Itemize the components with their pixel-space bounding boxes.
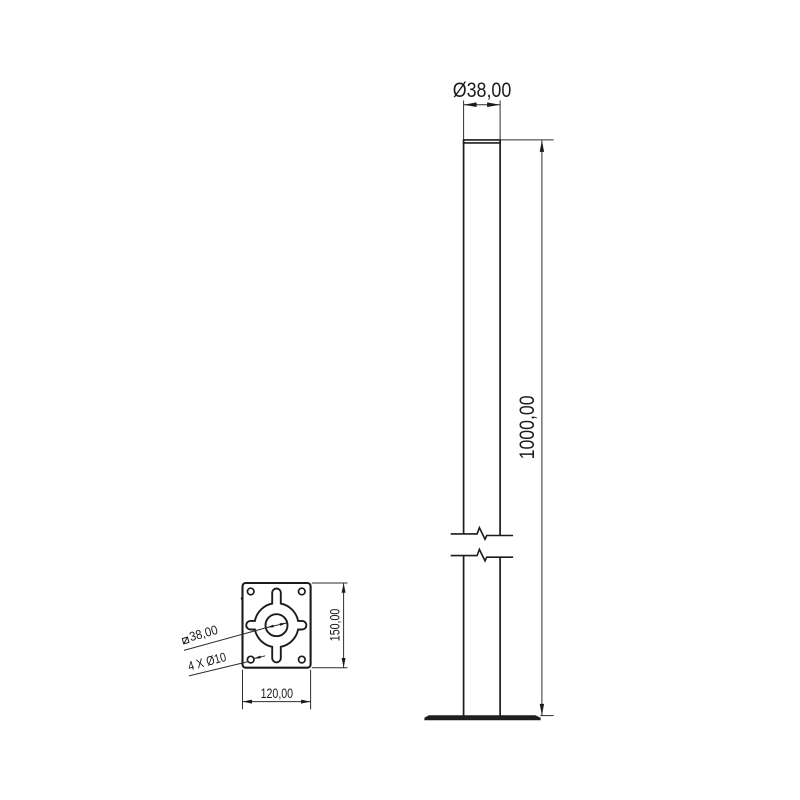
svg-text:1000,00: 1000,00	[516, 395, 539, 459]
svg-text:120,00: 120,00	[261, 685, 294, 701]
svg-text:Ø38,00: Ø38,00	[453, 79, 512, 102]
svg-text:150,00: 150,00	[327, 609, 343, 642]
